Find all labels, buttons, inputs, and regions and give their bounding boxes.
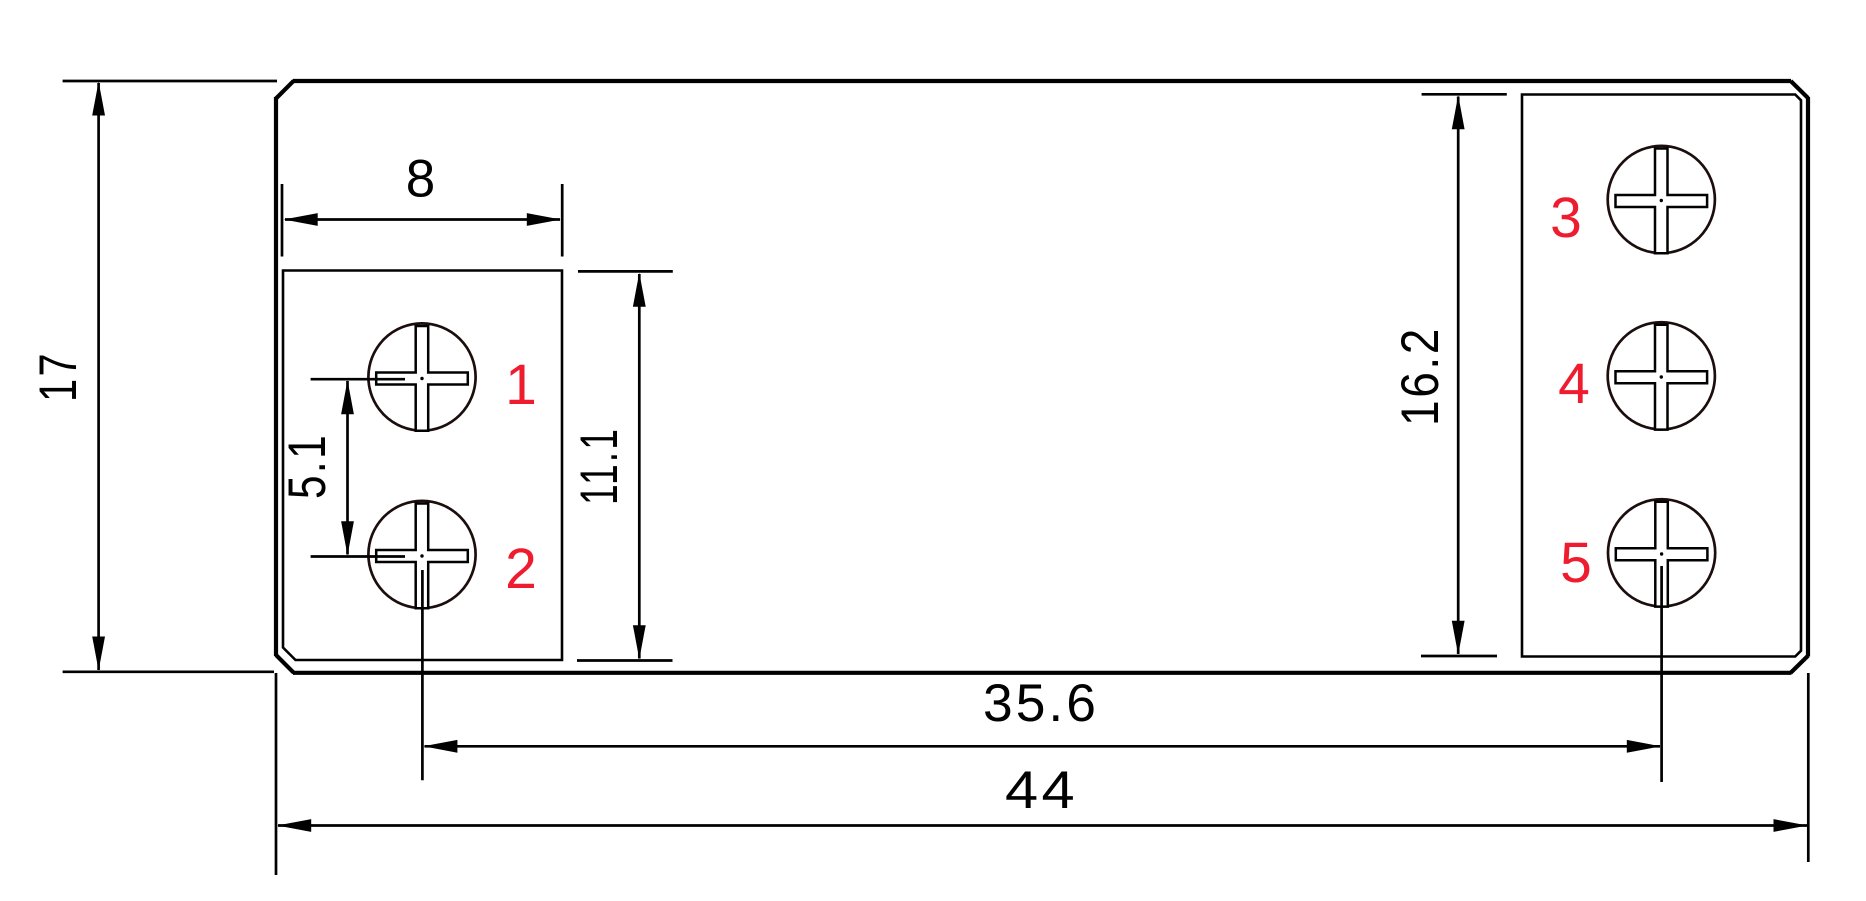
svg-text:8: 8	[406, 150, 438, 209]
svg-text:5: 5	[1560, 531, 1592, 595]
svg-text:17: 17	[29, 351, 88, 402]
svg-text:35.6: 35.6	[983, 674, 1099, 733]
svg-text:44: 44	[1005, 761, 1078, 820]
svg-text:3: 3	[1550, 186, 1582, 250]
svg-text:11.1: 11.1	[570, 427, 629, 505]
svg-text:1: 1	[505, 353, 537, 417]
svg-text:16.2: 16.2	[1391, 326, 1450, 426]
svg-text:5.1: 5.1	[278, 433, 337, 499]
svg-text:2: 2	[505, 537, 537, 601]
svg-text:4: 4	[1558, 352, 1590, 416]
